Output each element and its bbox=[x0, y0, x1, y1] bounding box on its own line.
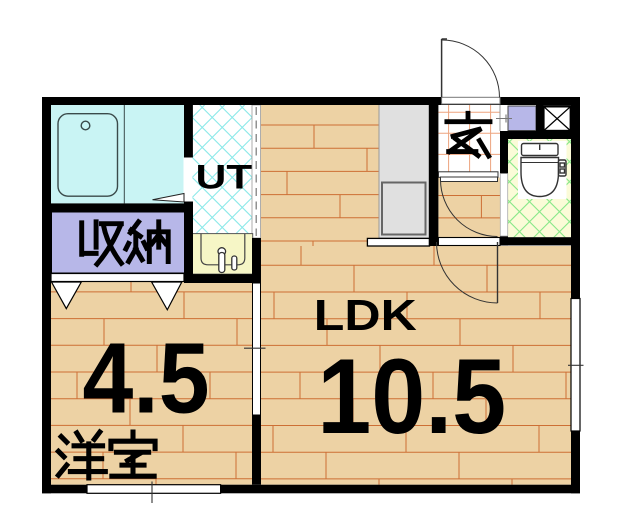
svg-text:UT: UT bbox=[196, 159, 253, 197]
svg-text:10.5: 10.5 bbox=[317, 336, 506, 456]
svg-text:LDK: LDK bbox=[314, 291, 417, 340]
svg-text:4.5: 4.5 bbox=[83, 323, 210, 435]
